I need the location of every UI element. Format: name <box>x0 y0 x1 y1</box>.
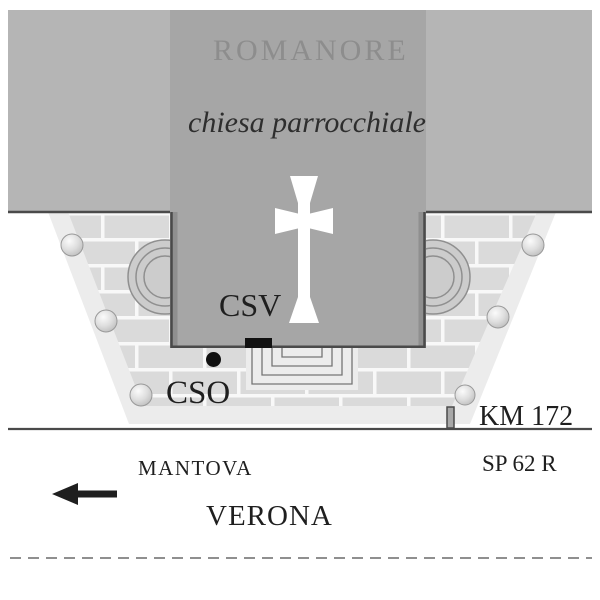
bollard <box>487 306 509 328</box>
direction-far-label: VERONA <box>206 502 333 531</box>
church-wall-shade-left <box>173 212 178 346</box>
town-label: ROMANORE <box>213 36 409 66</box>
csv-label: CSV <box>219 289 281 321</box>
church-wall-shade-right <box>419 212 424 346</box>
church-subtitle-label: chiesa parrocchiale <box>188 108 426 138</box>
cso-marker <box>206 352 221 367</box>
road-name-label: SP 62 R <box>482 452 557 475</box>
cso-label: CSO <box>166 377 230 410</box>
direction-near-label: MANTOVA <box>138 458 253 479</box>
km-post-icon <box>447 407 454 428</box>
bollard <box>522 234 544 256</box>
km-label: KM 172 <box>479 403 573 431</box>
bollard <box>130 384 152 406</box>
church-location-map: ROMANORE chiesa parrocchiale CSV CSO KM … <box>0 0 600 600</box>
left-building-block <box>8 10 170 213</box>
csv-marker <box>245 338 272 348</box>
direction-arrow-icon <box>52 483 117 505</box>
entrance-steps <box>246 348 358 390</box>
bollard <box>455 385 475 405</box>
right-building-block <box>426 10 592 213</box>
bollard <box>95 310 117 332</box>
bollard <box>61 234 83 256</box>
